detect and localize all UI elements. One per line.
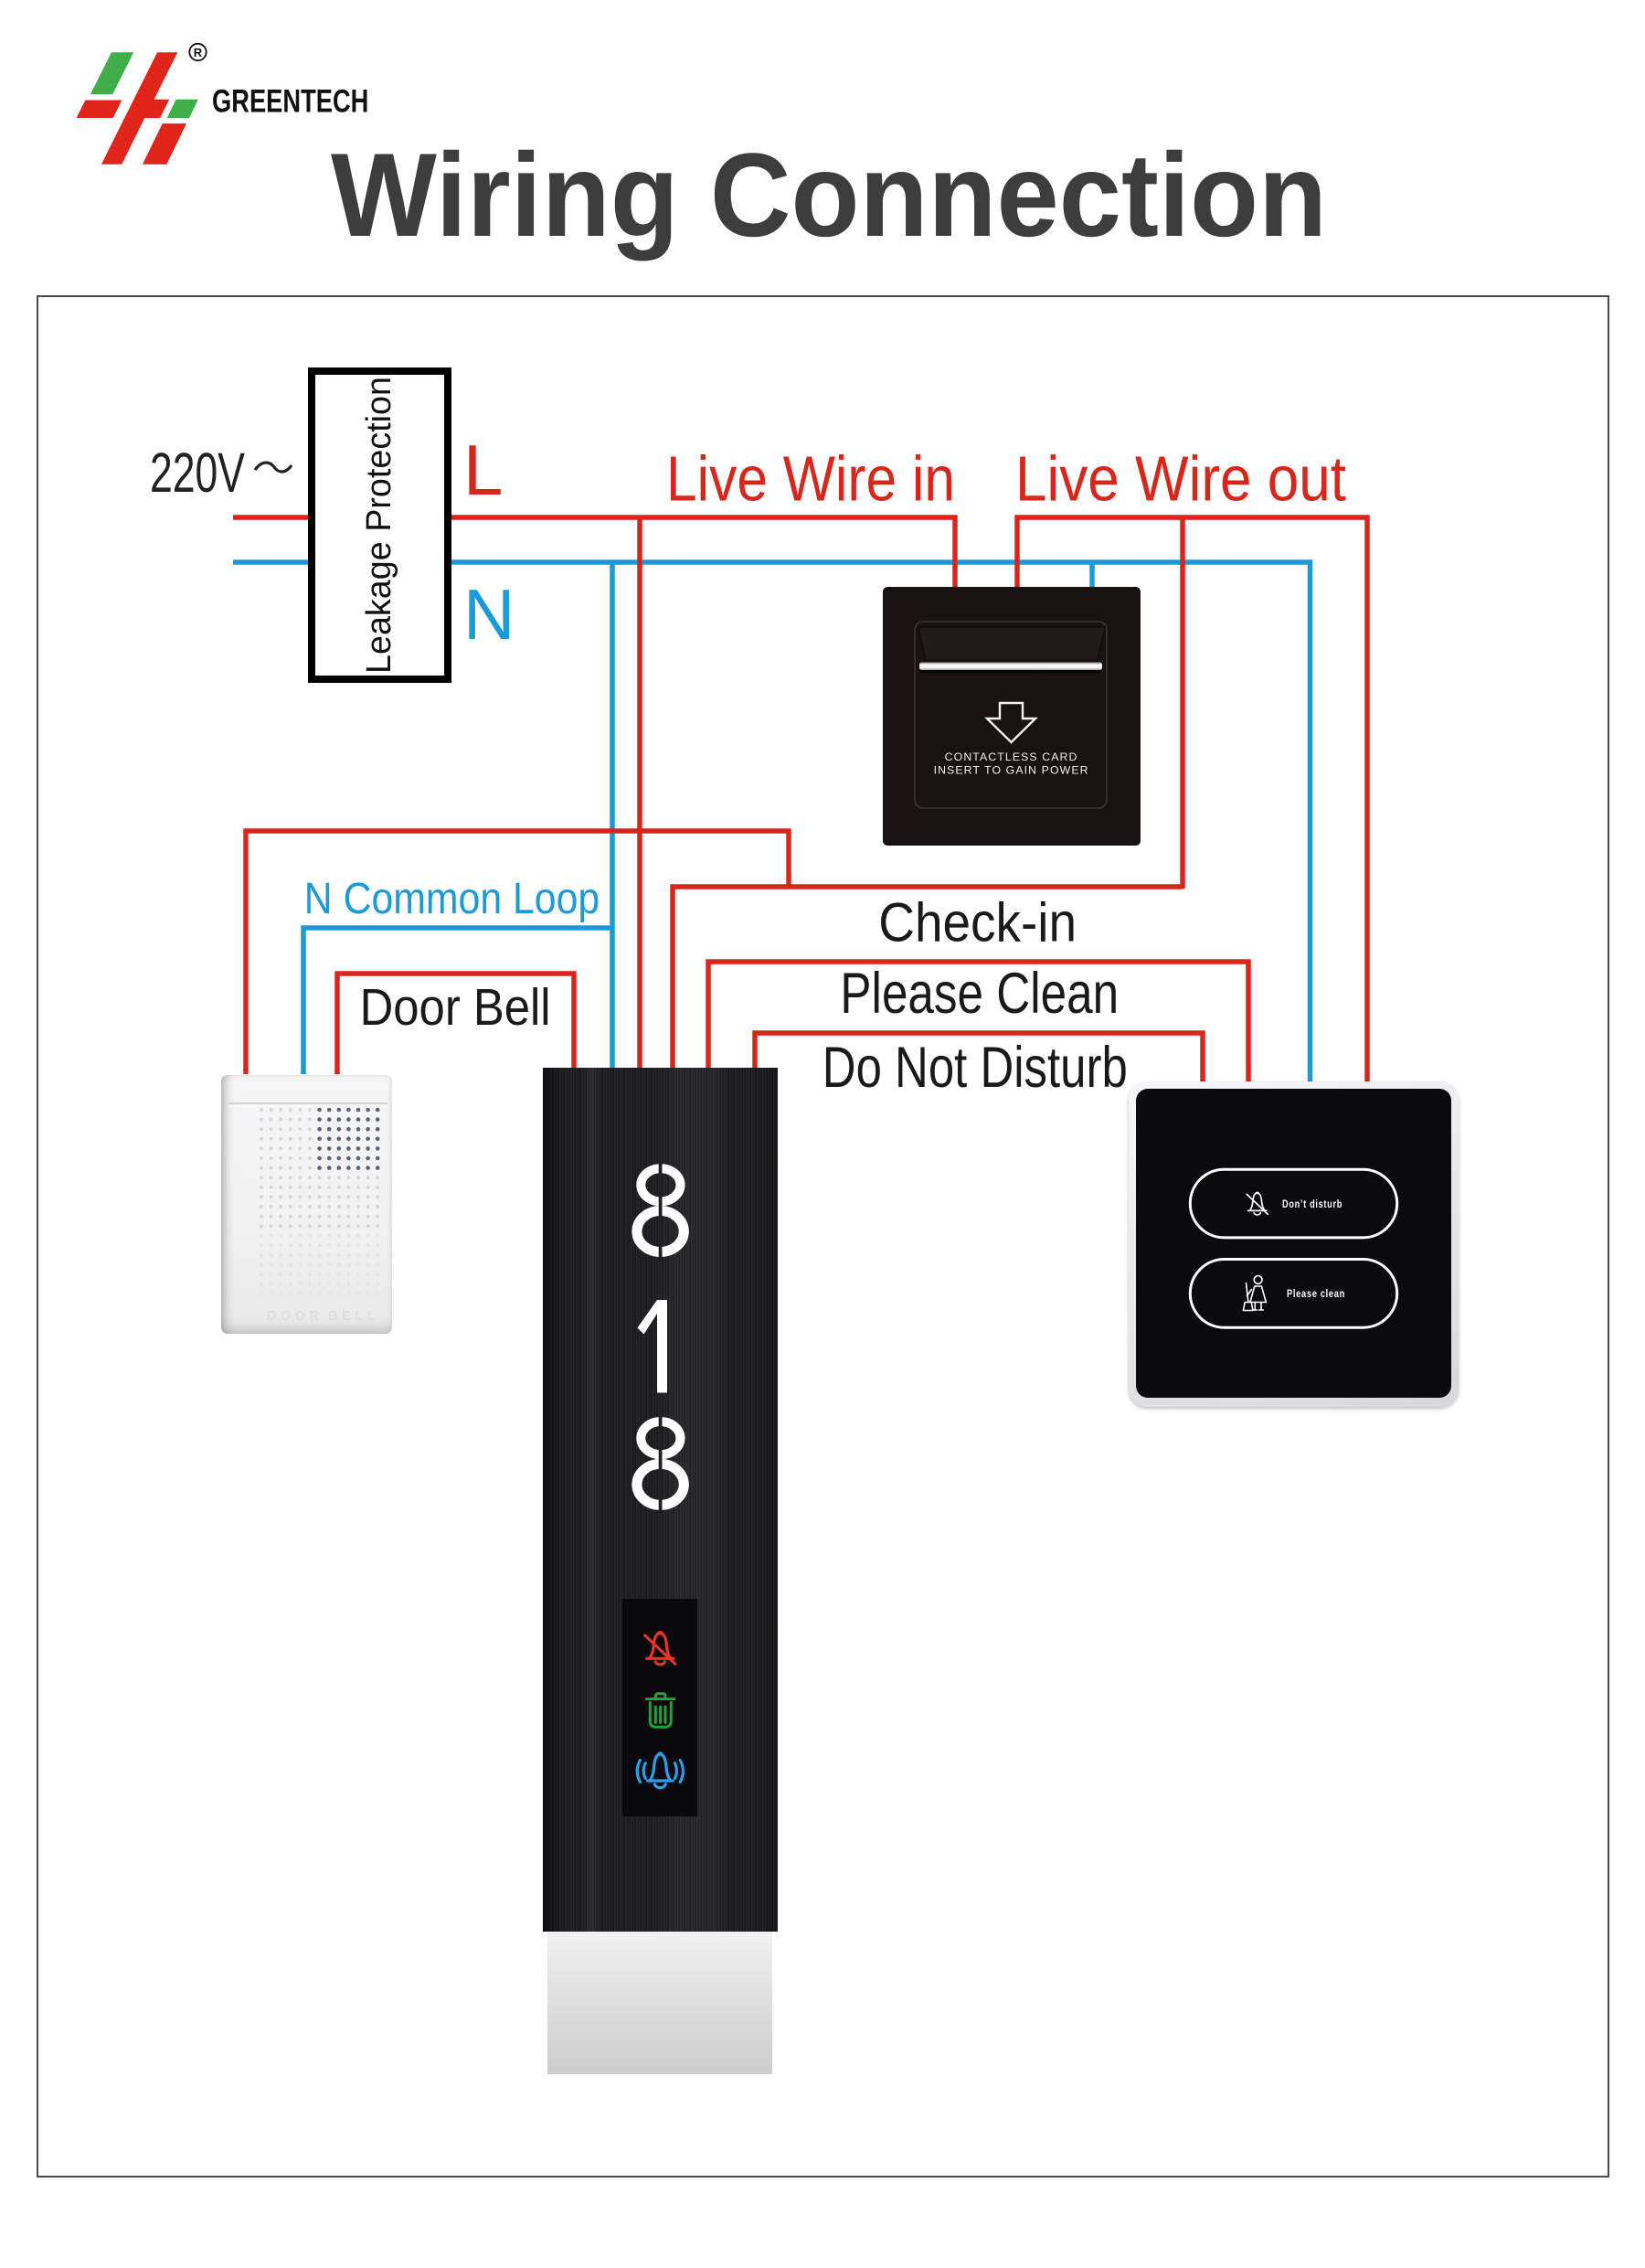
svg-text:Live Wire out: Live Wire out	[1015, 443, 1346, 515]
svg-text:CONTACTLESS CARD: CONTACTLESS CARD	[944, 751, 1077, 763]
svg-text:Live Wire in: Live Wire in	[666, 443, 955, 515]
svg-text:N Common Loop: N Common Loop	[304, 875, 600, 923]
svg-text:DOOR BELL: DOOR BELL	[267, 1309, 379, 1324]
svg-text:INSERT TO GAIN POWER: INSERT TO GAIN POWER	[933, 763, 1088, 776]
svg-text:Don’t disturb: Don’t disturb	[1282, 1198, 1343, 1210]
svg-text:Please clean: Please clean	[1287, 1287, 1345, 1300]
svg-text:Please Clean: Please Clean	[840, 962, 1119, 1026]
svg-text:Door Bell: Door Bell	[360, 978, 551, 1037]
svg-text:Check-in: Check-in	[878, 892, 1077, 953]
svg-text:Do Not Disturb: Do Not Disturb	[822, 1036, 1128, 1100]
svg-text:220V: 220V	[150, 442, 245, 504]
svg-text:L: L	[463, 430, 503, 510]
svg-text:N: N	[463, 574, 515, 655]
